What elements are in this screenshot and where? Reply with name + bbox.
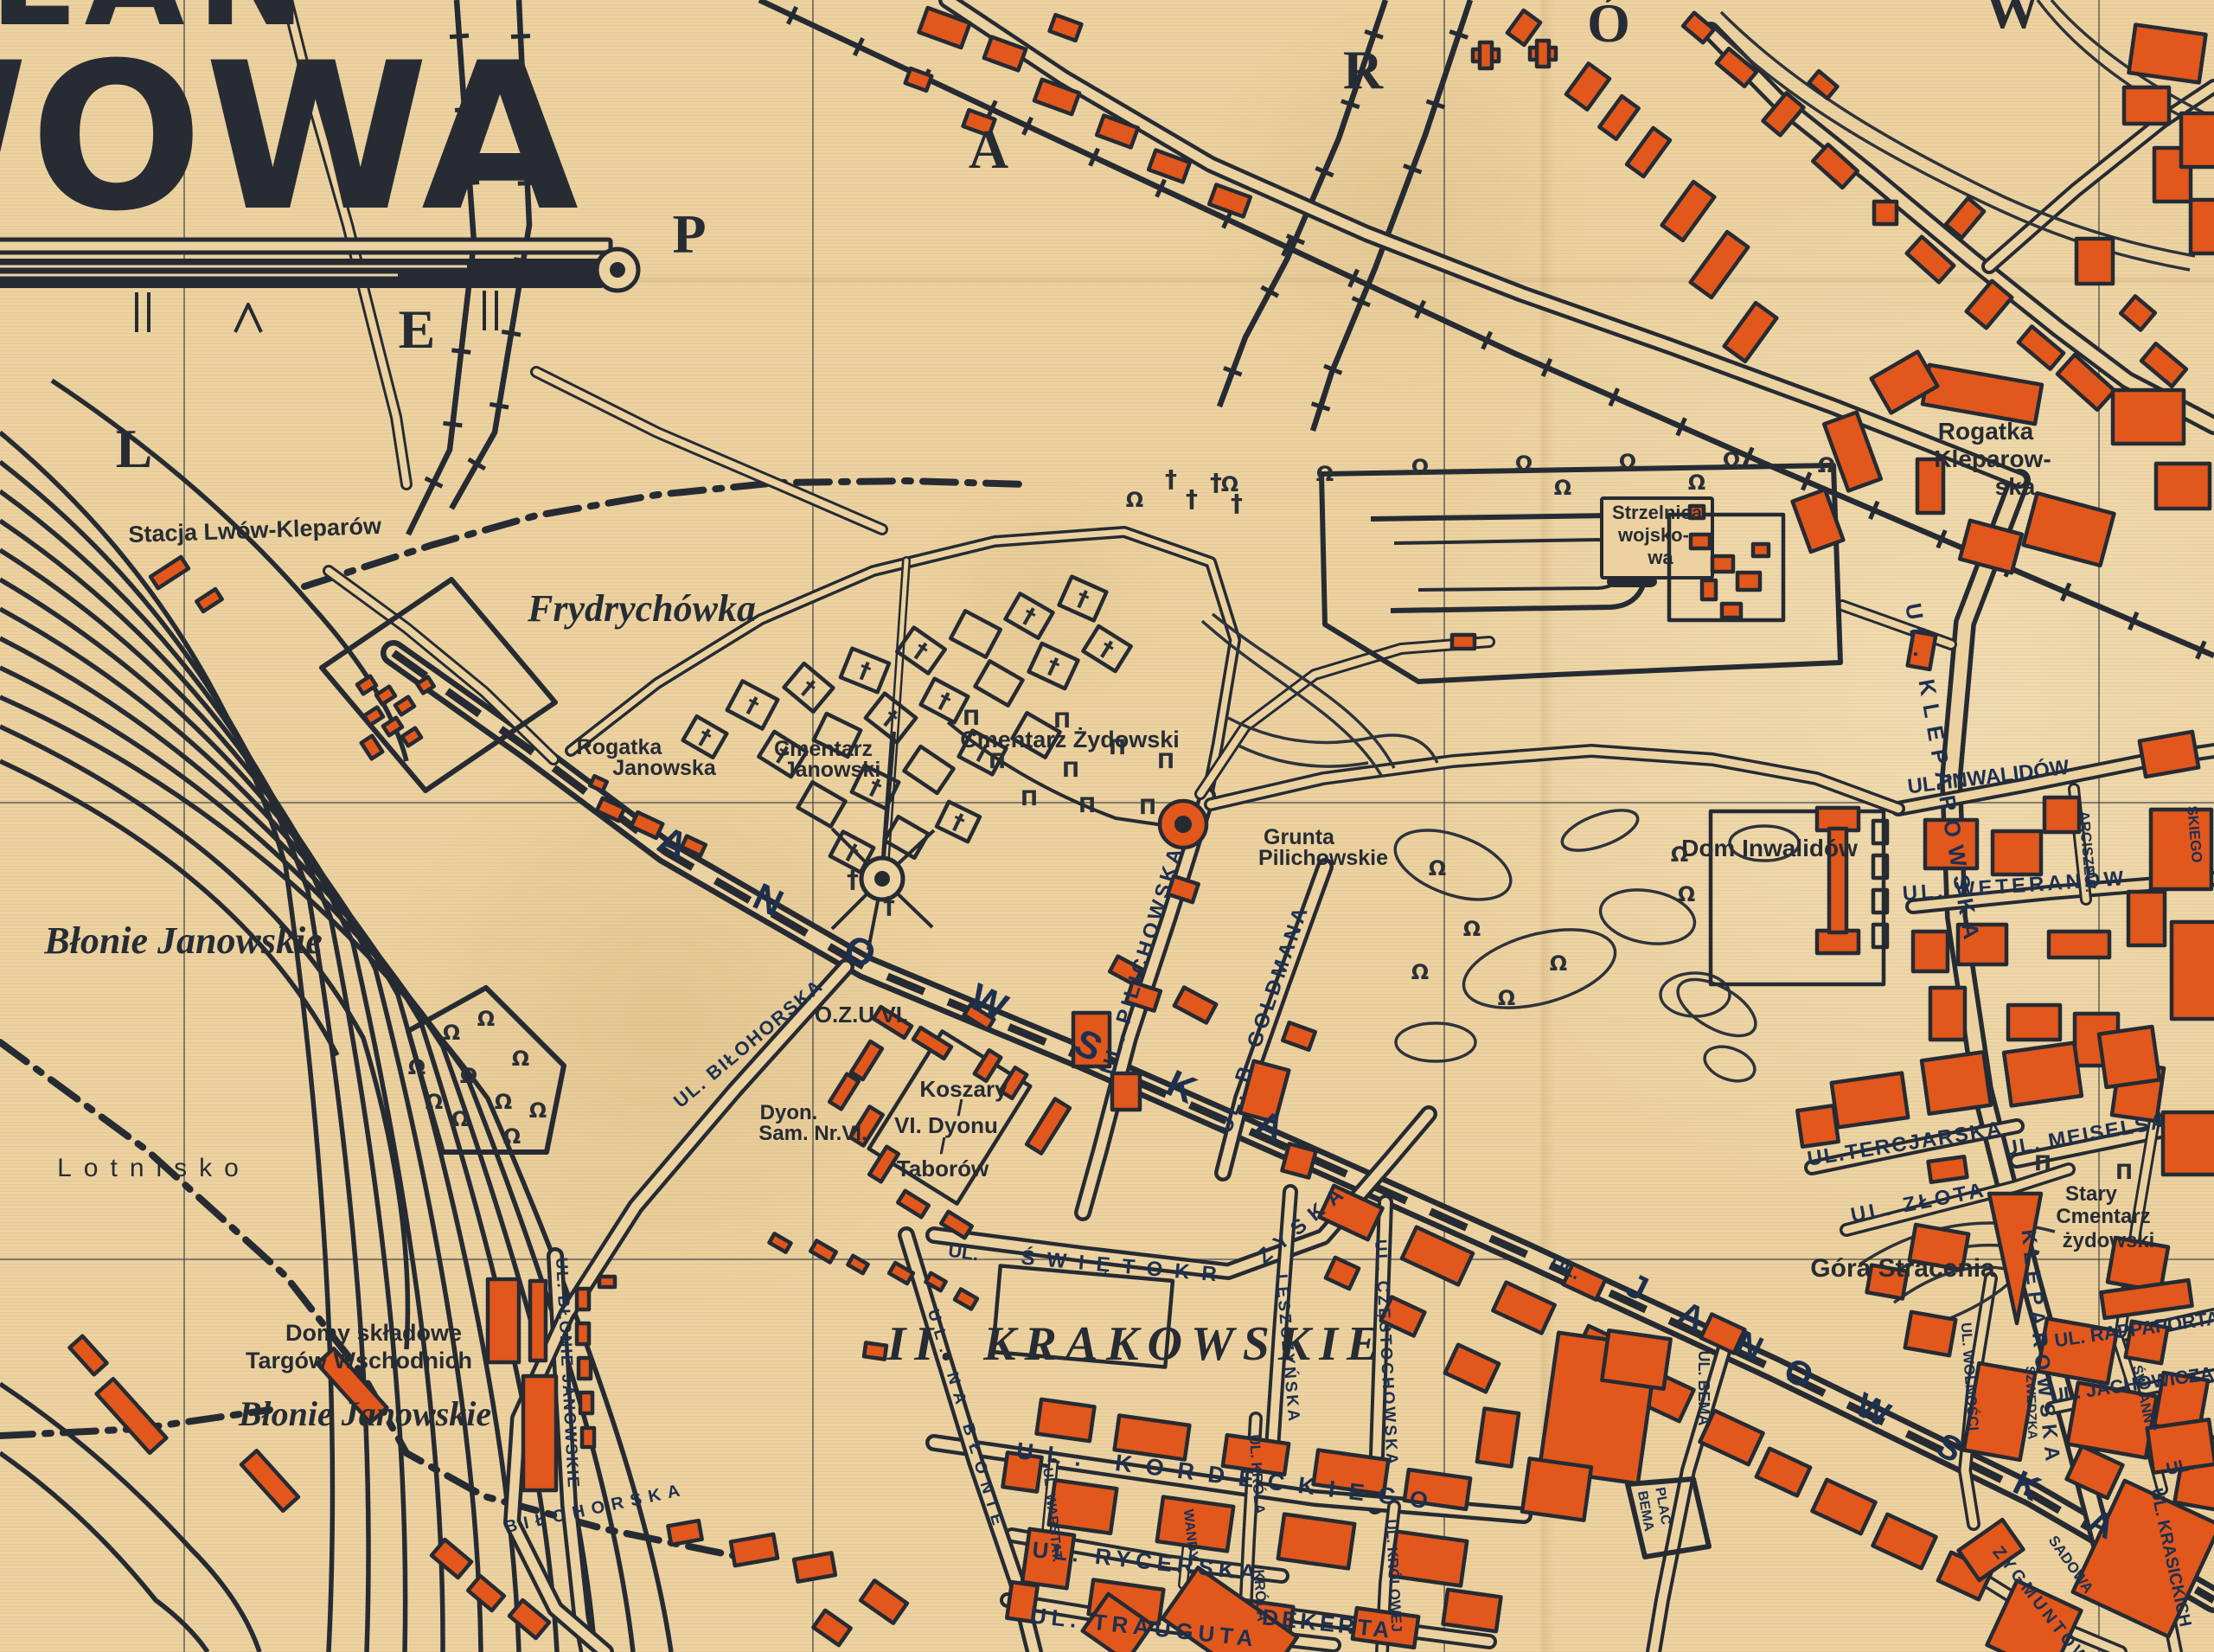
railway-tie	[1449, 31, 1468, 37]
cross-icon: †	[847, 865, 859, 893]
building	[1922, 1052, 1991, 1113]
place-label: Domy składowe	[285, 1320, 462, 1346]
building	[1874, 202, 1897, 224]
tree-icon: Ω	[1550, 951, 1567, 976]
city-boundary-line	[304, 481, 1025, 586]
building	[2076, 239, 2113, 284]
building	[1717, 48, 1756, 86]
military-label: Koszary	[919, 1076, 1008, 1102]
tree-icon: Ω	[1554, 476, 1571, 500]
terrain-contour	[1558, 802, 1643, 858]
building	[2129, 25, 2206, 83]
building	[861, 1580, 907, 1623]
matzevah-icon: Π	[2115, 1160, 2133, 1184]
building	[1691, 232, 1749, 298]
cross-icon: †	[933, 688, 956, 716]
cross-icon: †	[1017, 603, 1040, 631]
road-kleparow-top-road	[947, 0, 2019, 480]
banner-scroll-roll	[0, 259, 607, 288]
building	[2044, 797, 2079, 832]
place-label: Błonie Janowskie	[43, 919, 323, 962]
building	[580, 1393, 592, 1413]
building	[523, 1376, 556, 1490]
building	[1662, 182, 1715, 240]
street-label: UL. ZŁOTA	[1849, 1178, 1989, 1227]
building	[1627, 128, 1670, 176]
tree-icon: Ω	[477, 1007, 495, 1031]
railway-tie	[1365, 31, 1383, 37]
cemetery-label: Janowski	[784, 758, 881, 782]
matzevah-icon: Π	[1157, 749, 1174, 773]
banner-letter-fragment	[235, 304, 261, 332]
tree-icon: Ω	[1818, 453, 1835, 477]
building	[1737, 573, 1760, 590]
cemetery-label: żydowski	[2063, 1229, 2155, 1252]
building	[1756, 1449, 1810, 1496]
building	[731, 1534, 777, 1566]
building	[1477, 1409, 1519, 1467]
building	[1283, 1022, 1315, 1050]
cross-icon: †	[1072, 586, 1093, 614]
building	[2181, 113, 2214, 167]
railway-tie	[490, 404, 509, 407]
tree-icon: Ω	[529, 1098, 547, 1123]
railway-tie	[451, 350, 470, 353]
building	[376, 687, 395, 705]
matzevah-icon: Π	[1078, 793, 1096, 817]
building	[97, 1379, 167, 1453]
banner-scroll-curl-center	[610, 262, 625, 278]
tree-icon: Ω	[512, 1047, 529, 1071]
place-label: Dom Inwalidów	[1681, 835, 1858, 861]
building	[364, 708, 383, 726]
matzevah-icon: Π	[1021, 786, 1038, 810]
cross-icon: †	[841, 839, 863, 868]
building	[1913, 932, 1948, 971]
building	[530, 1281, 546, 1361]
building	[848, 1256, 867, 1273]
building	[2024, 493, 2115, 566]
building	[582, 1428, 594, 1447]
shooting-range-embankment	[1394, 540, 1622, 590]
terrain-contour	[1669, 968, 1765, 1047]
district-letter: P	[672, 203, 706, 265]
building	[851, 1041, 882, 1079]
building	[1480, 42, 1492, 68]
range-label: wa	[1647, 547, 1673, 568]
railway-track	[0, 432, 332, 1652]
cemetery-plot	[797, 782, 845, 826]
building	[1691, 535, 1710, 548]
building	[2004, 1043, 2082, 1106]
military-label: Taborów	[897, 1156, 989, 1181]
city-boundary-line	[0, 1042, 748, 1559]
map-title-fragment: LWOWA	[0, 20, 580, 256]
district-letter: A	[969, 118, 1008, 180]
cross-icon: †	[693, 724, 715, 752]
tree-icon: Ω	[460, 1064, 477, 1088]
building	[1326, 1258, 1359, 1289]
map-canvas: ††††††††††††††††ΩΩΩΩΩΩΩΩΩΩΩΩΩΩΩΩΩΩΩΩΩΩΩΩ…	[0, 0, 2214, 1652]
tree-icon: Ω	[1498, 986, 1515, 1010]
building	[1566, 63, 1609, 109]
tree-icon: Ω	[1316, 462, 1334, 486]
matzevah-icon: Π	[1139, 795, 1156, 819]
district-letter: L	[116, 418, 153, 479]
district-letter: R	[1343, 39, 1384, 100]
building	[668, 1521, 701, 1545]
building	[1797, 1105, 1838, 1146]
building	[829, 1074, 859, 1110]
tree-icon: Ω	[1126, 488, 1143, 512]
district-letter: E	[399, 298, 436, 360]
building	[1522, 1458, 1591, 1520]
tree-icon: Ω	[1723, 448, 1740, 472]
place-label: Góra Stracenia	[1810, 1254, 1995, 1283]
tree-icon: Ω	[451, 1107, 469, 1131]
range-label: Strzelnica	[1612, 502, 1703, 523]
building	[1929, 1156, 1968, 1182]
building	[2156, 464, 2210, 509]
building	[1445, 1345, 1499, 1393]
building	[577, 1323, 589, 1344]
tree-icon: Ω	[1515, 451, 1533, 476]
district-letter: Ó	[1587, 0, 1630, 54]
railway-tie	[1341, 101, 1360, 107]
tree-icon: Ω	[1411, 455, 1429, 479]
railway-tie	[1312, 404, 1330, 410]
building	[1712, 556, 1733, 572]
building	[395, 697, 414, 715]
street-label: UL.	[947, 1239, 981, 1265]
military-label: Sam. Nr.VI.	[758, 1122, 867, 1145]
cemetery-label: Cmentarz Żydowski	[960, 727, 1180, 752]
cemetery-label: Stary	[2065, 1182, 2118, 1206]
cemetery-plot	[904, 746, 953, 793]
railway-track	[0, 491, 406, 1652]
district-letter: W	[1985, 0, 2040, 40]
building	[2140, 732, 2198, 777]
cemetery-roundabout-center	[874, 871, 890, 887]
military-label: VI. Dyonu	[894, 1112, 998, 1138]
place-label: Błonie Janowskie	[238, 1394, 491, 1433]
building	[1537, 41, 1549, 67]
building	[579, 1358, 591, 1379]
building	[1602, 1330, 1670, 1388]
building	[432, 1540, 471, 1578]
building	[1174, 988, 1216, 1023]
building	[1905, 1312, 1956, 1355]
military-label: O.Z.U.VI.	[815, 1002, 908, 1028]
place-label: Frydrychówka	[527, 587, 756, 630]
railway-tie	[1426, 101, 1444, 107]
cross-icon: †	[1231, 489, 1243, 517]
building	[2141, 343, 2186, 386]
tree-icon: Ω	[1688, 471, 1705, 495]
street-label: UL. BIŁOHORSKA	[669, 975, 828, 1112]
cross-icon: †	[883, 891, 895, 919]
terrain-contour	[1700, 1041, 1760, 1087]
gasometer-circle-center	[1174, 816, 1192, 833]
place-label: Rogatka	[1938, 418, 2034, 445]
building	[2099, 1027, 2160, 1087]
tree-icon: Ω	[443, 1021, 460, 1045]
cross-icon: †	[1186, 484, 1198, 513]
tree-icon: Ω	[1678, 882, 1695, 906]
building	[1993, 831, 2041, 874]
cemetery-plot	[950, 611, 1001, 656]
cross-icon: †	[908, 637, 932, 665]
cross-icon: †	[1210, 468, 1222, 496]
place-label: ska	[1995, 473, 2036, 500]
place-label: Janowska	[612, 756, 717, 780]
terrain-contour	[1386, 816, 1520, 913]
ravine	[1238, 746, 1368, 766]
building	[2172, 922, 2214, 1019]
railway-track	[0, 579, 519, 1652]
place-label: Pilichowskie	[1258, 846, 1388, 870]
tree-icon: Ω	[1411, 960, 1429, 984]
road-surface-frydrychowka-road	[329, 571, 553, 759]
tree-icon: Ω	[1619, 450, 1636, 474]
building	[577, 1289, 589, 1309]
cross-icon: †	[1095, 636, 1118, 663]
district-label: II. KRAKOWSKIE	[886, 1317, 1388, 1371]
building	[2128, 892, 2165, 945]
building	[1724, 303, 1777, 362]
cross-icon: †	[741, 692, 764, 720]
cross-icon: †	[854, 657, 874, 686]
building	[1050, 15, 1082, 41]
tree-icon: Ω	[426, 1090, 443, 1114]
building	[1282, 1143, 1315, 1177]
building	[2049, 932, 2109, 957]
building	[2124, 87, 2169, 124]
building	[813, 1610, 850, 1645]
matzevah-icon: Π	[1062, 758, 1079, 782]
tree-icon: Ω	[503, 1124, 521, 1149]
tree-icon: Ω	[1463, 917, 1481, 941]
building	[1443, 1590, 1501, 1631]
place-label: PLAC	[1652, 1486, 1673, 1526]
railway-tie	[502, 331, 521, 335]
building	[402, 728, 421, 746]
ravine	[1228, 718, 1437, 763]
railway-track	[0, 727, 407, 1349]
building	[794, 1553, 835, 1581]
terrain-contour	[1396, 1023, 1475, 1061]
place-label: Lotnisko	[57, 1154, 251, 1182]
building	[488, 1279, 519, 1362]
railway-track	[0, 761, 337, 1055]
building	[1753, 544, 1769, 556]
range-label: wojsko-	[1617, 524, 1689, 546]
street-label: SZWEDZKA	[2023, 1366, 2040, 1440]
building	[599, 1277, 615, 1287]
street-label: UL. BEMA	[1695, 1351, 1712, 1426]
cemetery-plot	[975, 661, 1022, 705]
building	[2163, 1112, 2214, 1175]
building	[1930, 988, 1965, 1040]
building	[1452, 635, 1475, 649]
building	[241, 1450, 298, 1511]
building	[1812, 1480, 1875, 1534]
cross-icon: †	[1042, 653, 1063, 682]
building	[196, 589, 221, 611]
building	[1832, 1073, 1908, 1128]
building	[150, 557, 189, 588]
building	[898, 1191, 929, 1218]
matzevah-icon: Π	[989, 749, 1006, 773]
building	[1599, 96, 1638, 139]
tree-icon: Ω	[495, 1090, 512, 1114]
historic-city-map-lwow: ††††††††††††††††ΩΩΩΩΩΩΩΩΩΩΩΩΩΩΩΩΩΩΩΩΩΩΩΩ…	[0, 0, 2214, 1652]
railway-tie	[444, 423, 463, 426]
place-label: Targów Wschodnich	[246, 1348, 472, 1373]
military-label: Dyon.	[760, 1101, 818, 1124]
building	[1493, 1283, 1554, 1334]
building	[357, 676, 376, 695]
tree-icon: Ω	[408, 1055, 426, 1079]
building	[468, 1576, 504, 1610]
cross-icon: †	[1165, 464, 1177, 493]
tree-icon: Ω	[1429, 856, 1446, 880]
building	[2113, 390, 2184, 444]
place-label: Kleparow-	[1934, 445, 2051, 472]
building	[2008, 1005, 2060, 1040]
building	[1027, 1098, 1070, 1153]
building	[1112, 1073, 1140, 1110]
cemetery-label: Cmentarz	[2056, 1205, 2150, 1228]
cross-icon: †	[796, 675, 821, 701]
building	[1037, 1399, 1095, 1441]
banner-support-lines	[137, 291, 496, 332]
building	[2121, 296, 2155, 330]
building	[70, 1336, 107, 1375]
building	[1808, 71, 1837, 99]
building	[1872, 1514, 1936, 1568]
station-label: Stacja Lwów-Kleparów	[128, 513, 382, 547]
building	[1278, 1514, 1354, 1569]
building	[769, 1233, 790, 1252]
street-label: UL. PILICHOWSKA	[1097, 842, 1189, 1078]
building	[1923, 365, 2042, 424]
building	[2191, 200, 2214, 253]
building	[1702, 580, 1716, 599]
railway-track	[0, 550, 481, 1652]
railway-track	[0, 1453, 208, 1652]
building	[1722, 604, 1741, 618]
building	[864, 1342, 886, 1359]
cross-icon: †	[947, 809, 969, 837]
building	[955, 1289, 977, 1309]
